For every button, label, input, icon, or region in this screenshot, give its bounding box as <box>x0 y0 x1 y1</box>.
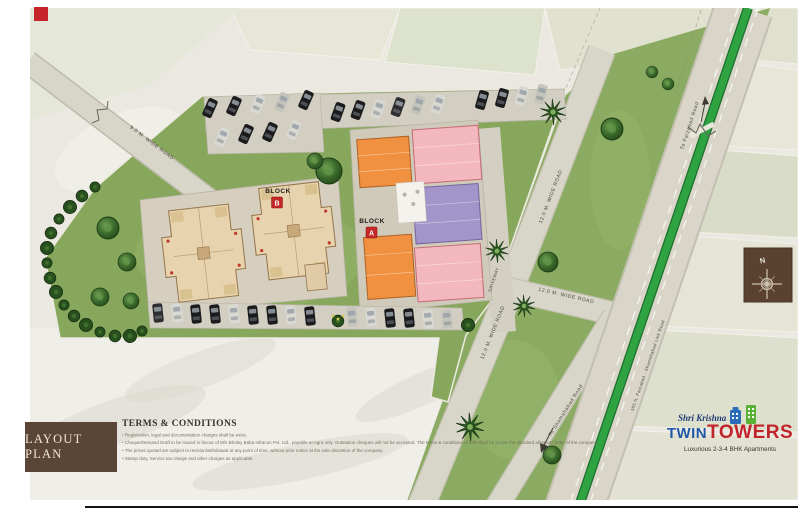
car <box>247 305 259 325</box>
block-a-label: BLOCK <box>359 218 385 225</box>
bush-icon <box>109 330 121 342</box>
terms-item: Stamp duty, Service tax charge and other… <box>122 455 650 463</box>
bush-icon <box>63 200 76 213</box>
bush-icon <box>45 227 57 239</box>
bush-icon <box>54 214 64 224</box>
bush-icon <box>42 258 52 268</box>
bush-icon <box>461 318 474 331</box>
brand-mark <box>34 7 48 21</box>
round-tree-icon <box>118 253 136 271</box>
brand-twin: TWIN <box>667 425 707 442</box>
bush-icon <box>95 327 105 337</box>
bush-icon <box>79 318 92 331</box>
layout-plan-title: LAYOUT PLAN <box>25 432 117 462</box>
bush-icon <box>44 272 56 284</box>
bush-icon <box>76 190 88 202</box>
round-tree-icon <box>123 293 139 309</box>
car <box>403 308 415 328</box>
courtyard <box>396 181 427 223</box>
bush-icon <box>59 300 69 310</box>
terms-list: Registration, legal and documentation ch… <box>122 431 650 463</box>
layout-plan-title-box: LAYOUT PLAN <box>25 422 117 472</box>
block-a-letter: A <box>369 231 374 238</box>
site-driveway <box>488 128 504 332</box>
car <box>384 308 396 328</box>
round-tree-icon <box>662 78 674 90</box>
flower-icon <box>342 315 345 318</box>
bush-icon <box>40 241 53 254</box>
layout-plan-poster: 9.0 M. WIDE ROAD 12.0 M. WIDE ROAD DRIVE… <box>0 0 798 521</box>
flower-icon <box>332 315 335 318</box>
compass: N <box>744 248 792 302</box>
car <box>152 303 164 323</box>
bush-icon <box>123 329 136 342</box>
car <box>422 309 434 329</box>
bush-icon <box>68 310 80 322</box>
flower-icon <box>337 318 340 321</box>
round-tree-icon <box>538 252 558 272</box>
terms-item: Cheque/Demand Draft to be issued in favo… <box>122 439 650 447</box>
round-tree-icon <box>97 217 119 239</box>
car <box>346 307 358 327</box>
car <box>209 304 221 324</box>
block-b-label: BLOCK <box>265 188 291 195</box>
car <box>266 305 278 325</box>
brand-tagline: Luxurious 2-3-4 BHK Apartments <box>664 446 796 453</box>
car <box>171 303 183 323</box>
round-tree-icon <box>601 118 623 140</box>
block-b-letter: B <box>274 201 279 208</box>
bush-icon <box>137 326 147 336</box>
round-tree-icon <box>307 153 323 169</box>
bush-icon <box>49 285 62 298</box>
footer-rule <box>85 506 798 508</box>
brand-logo: Shri Krishna TWINTOWERS Luxurious 2-3-4 … <box>664 404 796 462</box>
terms-item: Registration, legal and documentation ch… <box>122 431 650 439</box>
brand-name: TWINTOWERS <box>664 422 796 444</box>
outbuilding <box>305 263 328 291</box>
car <box>441 309 453 329</box>
car <box>365 307 377 327</box>
terms-item: The prices quoted are subject to revisio… <box>122 447 650 455</box>
car <box>285 305 297 325</box>
car <box>304 306 316 326</box>
brand-towers: TOWERS <box>707 422 793 443</box>
round-tree-icon <box>91 288 109 306</box>
car <box>228 304 240 324</box>
car <box>190 304 202 324</box>
bush-icon <box>90 182 100 192</box>
terms-heading: TERMS & CONDITIONS <box>122 419 652 429</box>
terms-and-conditions: TERMS & CONDITIONS Registration, legal a… <box>122 419 652 484</box>
round-tree-icon <box>646 66 658 78</box>
